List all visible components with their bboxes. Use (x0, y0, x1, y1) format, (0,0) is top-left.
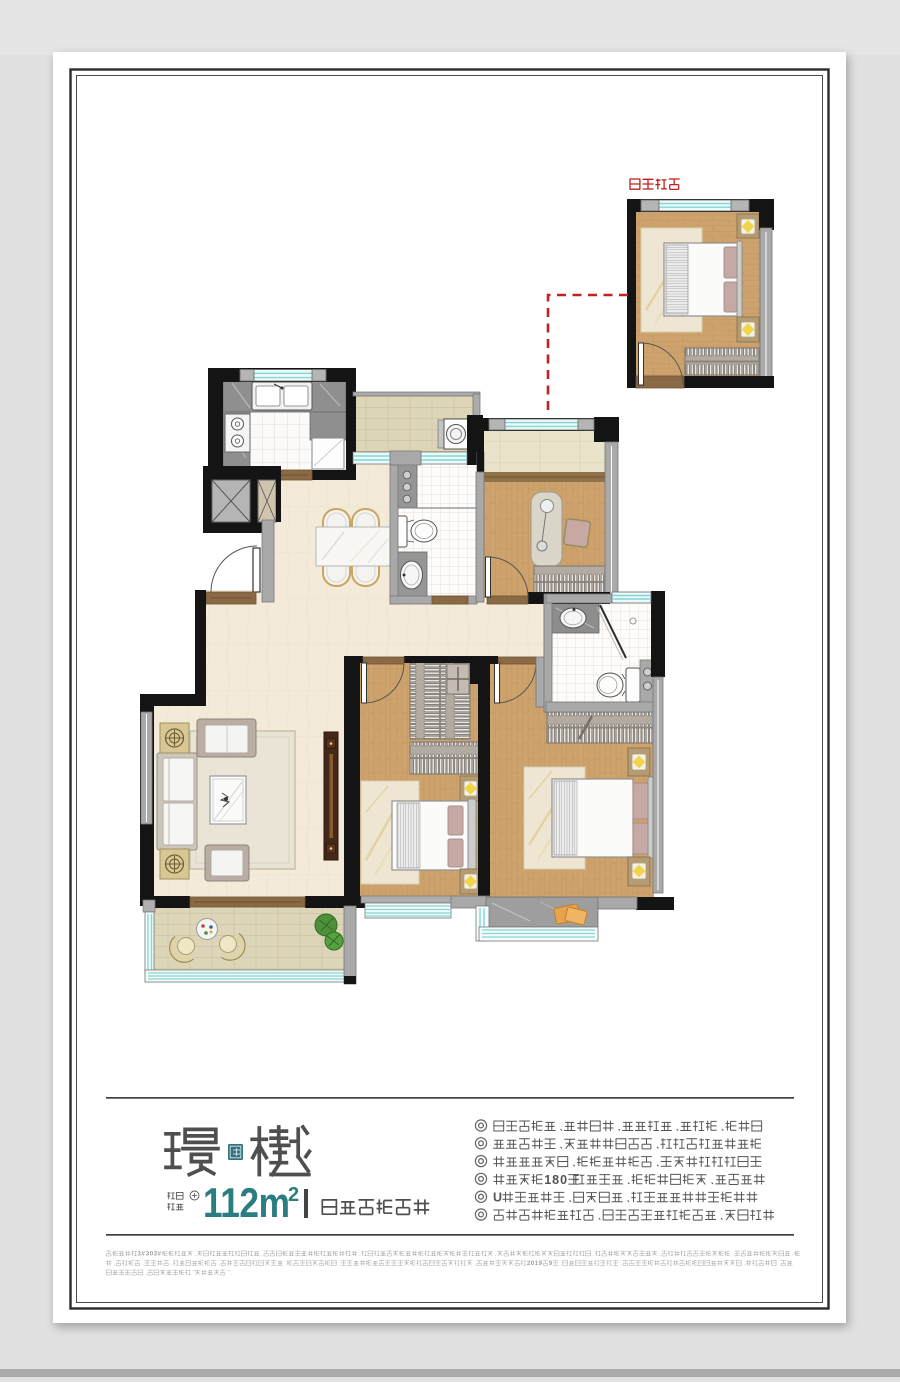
svg-text:U: U (493, 1191, 502, 1205)
svg-text:2: 2 (288, 1184, 299, 1206)
svg-text:#: # (158, 1251, 162, 1258)
svg-text:8: 8 (552, 1173, 559, 1187)
svg-text:112m: 112m (203, 1180, 290, 1227)
svg-text:1: 1 (544, 1173, 551, 1187)
svg-text:9: 9 (549, 1260, 553, 1267)
svg-text:#: # (141, 1251, 145, 1258)
svg-text:9: 9 (539, 1260, 543, 1267)
svg-text:0: 0 (560, 1173, 567, 1187)
